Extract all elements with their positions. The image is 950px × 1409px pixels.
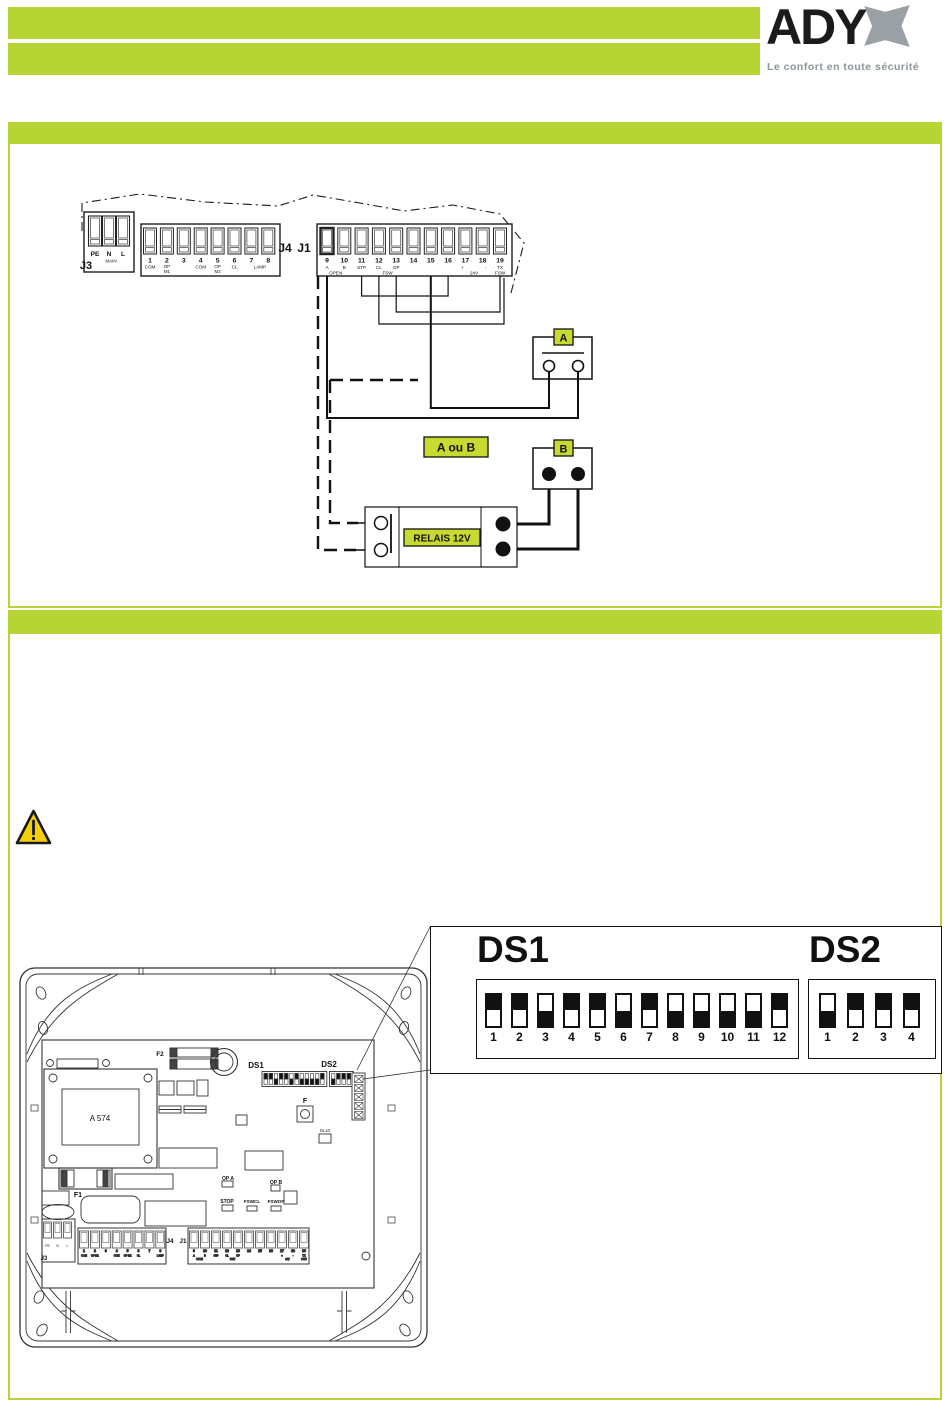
- j4-terminal-label: CL: [232, 265, 238, 270]
- svg-text:F1: F1: [74, 1192, 82, 1199]
- j4-terminal-number: 3: [182, 258, 186, 265]
- svg-text:STOP: STOP: [220, 1199, 234, 1205]
- j4-terminal-label: M2: [215, 269, 222, 274]
- ds1-switch-panel: 123456789101112: [476, 979, 799, 1059]
- svg-label: 7: [148, 1249, 150, 1253]
- switch-knob-down: [539, 1011, 552, 1026]
- svg-label: 8: [159, 1249, 161, 1253]
- j1-terminal-number: 10: [341, 258, 349, 265]
- j1-terminal-number: 12: [375, 258, 383, 265]
- ds2-switch-1: 1: [819, 993, 836, 1044]
- j1-terminal-label: OP: [393, 265, 400, 270]
- switch-number: 3: [880, 1030, 887, 1044]
- j1-terminal-label: STP: [357, 265, 366, 270]
- svg-text:DS2: DS2: [321, 1060, 337, 1069]
- cable-slot-right: [337, 1291, 352, 1333]
- j1-terminal-span-label: FSW: [382, 271, 393, 276]
- svg-label: 24V: [285, 1258, 290, 1261]
- switch-number: 4: [908, 1030, 915, 1044]
- ds1-switch-1: 1: [485, 993, 502, 1044]
- svg-label: OP M2: [124, 1255, 132, 1258]
- switch-knob-up: [849, 995, 862, 1010]
- logo-x-arrows-icon: [861, 3, 913, 49]
- label-b-text: B: [560, 444, 568, 456]
- svg-text:L: L: [67, 1244, 69, 1248]
- svg-text:OP B: OP B: [270, 1180, 283, 1186]
- j1-terminal-number: 13: [392, 258, 400, 265]
- switch-knob-down: [669, 1011, 682, 1026]
- ds2-mini-block: [330, 1072, 354, 1087]
- wire-bracket-11-16: [362, 276, 449, 296]
- svg-text:F: F: [303, 1098, 308, 1105]
- switch-number: 2: [516, 1030, 523, 1044]
- j4-terminal-number: 8: [266, 258, 270, 265]
- svg-label: COM: [81, 1255, 87, 1258]
- j4-terminal-number: 6: [233, 258, 237, 265]
- svg-label: OP: [236, 1255, 240, 1258]
- dip-switch-detail-panel: DS1 DS2 123456789101112 1234: [430, 926, 942, 1074]
- switch-number: 8: [672, 1030, 679, 1044]
- ds1-switch-10: 10: [719, 993, 736, 1044]
- switch-knob-down: [721, 1011, 734, 1026]
- svg-text:DL10: DL10: [320, 1128, 331, 1133]
- j1-terminal-number: 14: [410, 258, 418, 265]
- section2-title-bar: [8, 610, 942, 632]
- manual-page: ADY Le confort en toute sécurité PE N: [0, 0, 950, 1409]
- terminal-filled: [542, 467, 556, 481]
- switch-knob-down: [747, 1011, 760, 1026]
- ds1-switch-4: 4: [563, 993, 580, 1044]
- device-b: B: [533, 440, 592, 489]
- svg-label: 15: [258, 1249, 262, 1253]
- ds1-switch-5: 5: [589, 993, 606, 1044]
- control-board: 1COM2OP M134COM5OP M26CL78LAMP 9A10B11ST…: [42, 1040, 374, 1288]
- svg-label: OP M1: [91, 1255, 99, 1258]
- svg-text:FSWOP: FSWOP: [268, 1199, 285, 1204]
- header-green-bar-top: [8, 7, 760, 39]
- ds1-title: DS1: [477, 929, 549, 971]
- svg-label: 4: [116, 1249, 118, 1253]
- j4-terminal-number: 4: [199, 258, 203, 265]
- label-a-text: A: [560, 333, 568, 345]
- switch-number: 3: [542, 1030, 549, 1044]
- switch-knob-down: [617, 1011, 630, 1026]
- ds1-switch-2: 2: [511, 993, 528, 1044]
- switch-number: 4: [568, 1030, 575, 1044]
- ds2-title: DS2: [809, 929, 881, 971]
- j3-terminal-label: N: [107, 251, 112, 258]
- svg-label: OPEN: [196, 1258, 203, 1261]
- switch-number: 7: [646, 1030, 653, 1044]
- svg-label: 2: [94, 1249, 96, 1253]
- wire-dashed-branch: [330, 380, 418, 523]
- svg-text:DS1: DS1: [248, 1061, 264, 1070]
- svg-text:J3: J3: [41, 1256, 48, 1262]
- j1-terminal-label: +: [461, 265, 464, 270]
- j1-terminal-label: CL: [376, 265, 382, 270]
- switch-number: 11: [747, 1030, 760, 1044]
- switch-number: 2: [852, 1030, 859, 1044]
- switch-knob-up: [487, 995, 500, 1010]
- j1-terminal-span-label: FSW: [495, 271, 506, 276]
- j1-terminal-number: 9: [325, 258, 329, 265]
- ds1-mini-block: [262, 1072, 327, 1087]
- svg-label: 1: [83, 1249, 85, 1253]
- relay-out-terminal: [496, 542, 511, 557]
- wiring-diagram: PE N L MAIN J3 1COM2OPM134COM5OPM26CL78L…: [8, 142, 942, 608]
- svg-label: LAMP: [157, 1255, 164, 1258]
- warning-icon: [17, 811, 50, 843]
- terminal-block-j3: PE N L MAIN J3: [80, 212, 134, 272]
- svg-label: 9: [193, 1249, 195, 1253]
- j1-terminal-label: B: [343, 265, 346, 270]
- switch-number: 1: [490, 1030, 497, 1044]
- j4-terminal-label: COM: [145, 265, 156, 270]
- j1-terminal-span-label: 24V: [470, 271, 479, 276]
- j1-terminal-span-label: OPEN: [329, 271, 342, 276]
- svg-label: FSW: [301, 1258, 307, 1261]
- svg-text:J1: J1: [179, 1238, 187, 1245]
- label-a-ou-b: A ou B: [424, 437, 488, 457]
- brand-logo: ADY: [766, 2, 913, 52]
- svg-label: 16: [269, 1249, 273, 1253]
- j4-terminal-label: LAMP: [254, 265, 267, 270]
- switch-knob-down: [695, 1011, 708, 1026]
- ds2-switch-4: 4: [903, 993, 920, 1044]
- j3-terminal-label: PE: [91, 251, 100, 258]
- ds2-switch-panel: 1234: [808, 979, 936, 1059]
- ds1-switch-3: 3: [537, 993, 554, 1044]
- wire-bracket-12-19: [379, 276, 504, 324]
- switch-knob-down: [821, 1011, 834, 1026]
- switch-number: 12: [773, 1030, 786, 1044]
- svg-label: FSW: [230, 1258, 236, 1261]
- connector-column: [352, 1073, 365, 1120]
- svg-text:FSWCL: FSWCL: [244, 1199, 261, 1204]
- j1-terminal-number: 19: [496, 258, 504, 265]
- header-green-bar-bottom: [8, 43, 760, 75]
- terminal-block-j1: 9A10B11STP12CL13OP14151617+18-19TXOPENFS…: [317, 224, 512, 276]
- terminal-filled: [571, 467, 585, 481]
- switch-knob-up: [877, 995, 890, 1010]
- ds2-switch-2: 2: [847, 993, 864, 1044]
- j4-terminal-label: COM: [195, 265, 206, 270]
- j1-terminal-number: 18: [479, 258, 487, 265]
- svg-text:OP A: OP A: [222, 1176, 234, 1182]
- svg-label: 18: [291, 1249, 295, 1253]
- wire-dashed-main: [318, 276, 356, 550]
- j3-main-label: MAIN: [105, 259, 116, 264]
- j4-terminal-number: 7: [250, 258, 254, 265]
- j3-terminal-label: L: [121, 251, 125, 258]
- ds1-switch-6: 6: [615, 993, 632, 1044]
- ds1-switch-11: 11: [745, 993, 762, 1044]
- switch-knob-up: [905, 995, 918, 1010]
- switch-knob-up: [513, 995, 526, 1010]
- j1-terminal-number: 16: [444, 258, 452, 265]
- svg-text:F2: F2: [156, 1051, 164, 1058]
- svg-text:PE: PE: [45, 1244, 50, 1248]
- ds2-switch-3: 3: [875, 993, 892, 1044]
- j4-terminal-label: M1: [164, 269, 171, 274]
- svg-label: 14: [247, 1249, 251, 1253]
- ds1-switch-8: 8: [667, 993, 684, 1044]
- ds1-switch-7: 7: [641, 993, 658, 1044]
- svg-label: STP: [214, 1255, 219, 1258]
- relay-label-text: RELAIS 12V: [413, 534, 471, 545]
- switch-number: 6: [620, 1030, 627, 1044]
- j1-terminal-label: TX: [497, 265, 503, 270]
- brand-text: ADY: [766, 2, 866, 52]
- device-a: A: [533, 329, 592, 418]
- terminal-block-j4: 1COM2OPM134COM5OPM26CL78LAMP: [141, 224, 280, 276]
- j3-name: J3: [80, 260, 92, 272]
- svg-label: 13: [236, 1249, 240, 1253]
- svg-label: COM: [114, 1255, 120, 1258]
- relay-out-terminal: [496, 517, 511, 532]
- j1-terminal-number: 17: [462, 258, 470, 265]
- svg-label: 5: [127, 1249, 129, 1253]
- svg-label: 12: [225, 1249, 229, 1253]
- switch-knob-up: [565, 995, 578, 1010]
- j1-terminal-number: 15: [427, 258, 435, 265]
- brand-tagline: Le confort en toute sécurité: [767, 61, 919, 73]
- switch-number: 1: [824, 1030, 831, 1044]
- section1-title-bar: [8, 122, 942, 142]
- relay-module: RELAIS 12V: [365, 507, 517, 567]
- switch-knob-up: [773, 995, 786, 1010]
- switch-knob-up: [591, 995, 604, 1010]
- switch-number: 9: [698, 1030, 705, 1044]
- relay-coil-terminal: [375, 544, 388, 557]
- j1-name: J1: [297, 241, 311, 255]
- ds1-switch-12: 12: [771, 993, 788, 1044]
- svg-text:A ou B: A ou B: [437, 441, 476, 455]
- svg-label: 19: [302, 1249, 306, 1253]
- svg-label: 10: [203, 1249, 207, 1253]
- svg-label: 6: [138, 1249, 140, 1253]
- j4-name: J4: [278, 241, 292, 255]
- terminal-open: [544, 361, 555, 372]
- svg-label: 17: [280, 1249, 284, 1253]
- svg-text:A 574: A 574: [90, 1114, 111, 1123]
- svg-text:J4: J4: [166, 1238, 174, 1245]
- switch-knob-up: [643, 995, 656, 1010]
- j1-terminal-number: 11: [358, 258, 365, 265]
- switch-number: 5: [594, 1030, 601, 1044]
- svg-label: 11: [214, 1249, 218, 1253]
- svg-label: 3: [105, 1249, 107, 1253]
- j4-terminal-number: 1: [148, 258, 152, 265]
- terminal-open: [573, 361, 584, 372]
- relay-coil-terminal: [375, 517, 388, 530]
- ds1-switch-9: 9: [693, 993, 710, 1044]
- switch-number: 10: [721, 1030, 734, 1044]
